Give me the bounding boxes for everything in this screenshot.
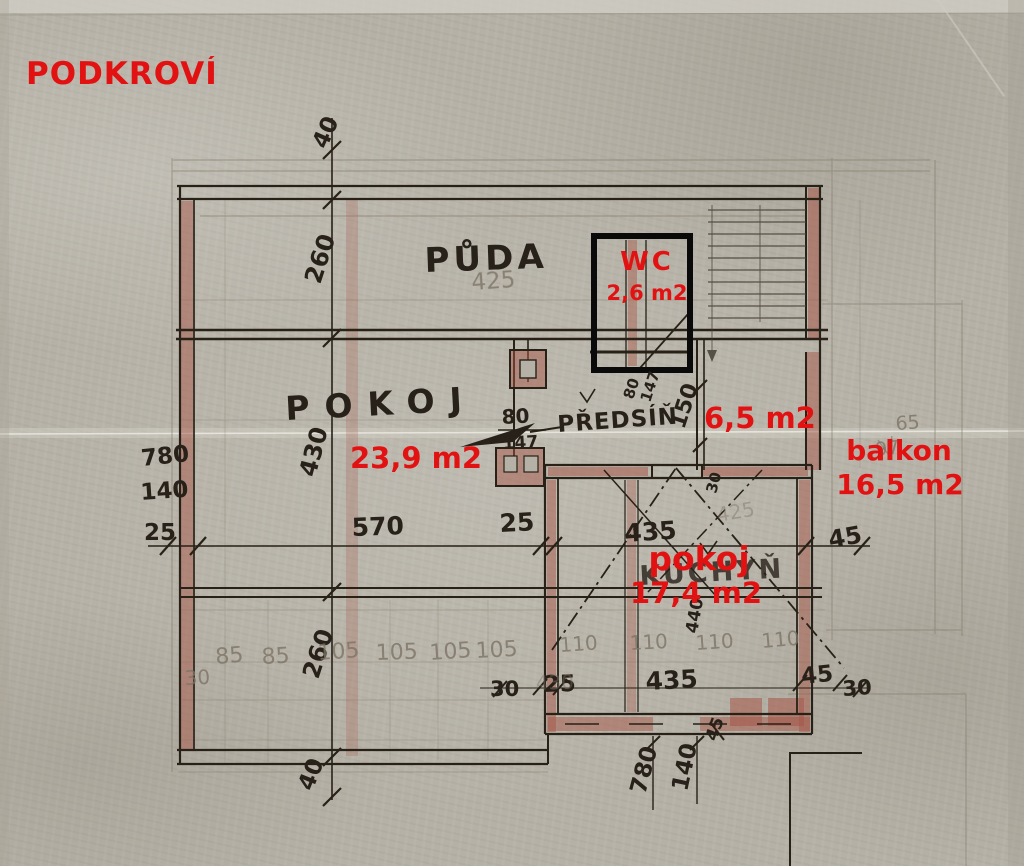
annotation-balkon-label: balkon <box>846 434 952 467</box>
dim-30-bottom-a: 30 <box>490 677 519 701</box>
dim-pencil-110d: 110 <box>760 626 800 653</box>
dim-140-left: 140 <box>140 477 190 506</box>
dim-door-147: 147 <box>502 432 538 454</box>
dim-45-bottom: 45 <box>800 661 835 690</box>
dim-pencil-faint-425: 425 <box>715 497 757 527</box>
dim-left-40-top: 40 <box>308 113 345 153</box>
dim-pencil-105d: 105 <box>475 637 518 664</box>
dim-pencil-85b: 85 <box>261 644 290 670</box>
dim-pencil-85a: 85 <box>214 643 244 670</box>
dim-435-bottom: 435 <box>645 664 699 696</box>
annotation-pokoj2-label: pokoj <box>648 539 749 578</box>
dim-45-mid: 45 <box>826 521 864 554</box>
annotation-pokoj2-area: 17,4 m2 <box>630 576 762 610</box>
annotation-wc-label: WC <box>620 247 674 277</box>
dim-30-bottom-b: 30 <box>842 675 873 701</box>
annotation-pokoj-area: 23,9 m2 <box>350 441 482 475</box>
scanned-floor-plan: PŮDA POKOJ PŘEDSÍŇ KUCHYŇ 40 260 430 260… <box>0 0 1024 866</box>
pencil-construction-lines <box>172 158 966 866</box>
dim-door-80: 80 <box>501 404 530 429</box>
page-title: PODKROVÍ <box>26 56 218 92</box>
dim-pencil-110a: 110 <box>559 630 599 657</box>
dim-pencil-105b: 105 <box>375 640 418 666</box>
room-label-pokoj: POKOJ <box>284 379 477 428</box>
dim-door-vert-147: 147 <box>637 369 664 404</box>
dim-pencil-110c: 110 <box>695 628 735 655</box>
dim-pencil-faint-430: 430 <box>535 670 574 695</box>
dim-150: 150 <box>666 380 704 431</box>
dim-pencil-65: 65 <box>895 411 921 435</box>
dim-pencil-105c: 105 <box>429 638 473 666</box>
dim-780-bottom: 780 <box>626 743 664 796</box>
annotation-wc-area: 2,6 m2 <box>606 281 687 305</box>
floor-plan-drawing: PŮDA POKOJ PŘEDSÍŇ KUCHYŇ 40 260 430 260… <box>0 0 1024 866</box>
dim-25-left: 25 <box>144 520 176 546</box>
dim-pencil-105a: 105 <box>317 638 361 666</box>
dim-570: 570 <box>351 511 404 542</box>
dim-pencil-425: 425 <box>471 267 517 296</box>
dim-pencil-110b: 110 <box>629 629 668 655</box>
annotation-balkon-area: 16,5 m2 <box>836 468 964 501</box>
dim-780-left: 780 <box>140 441 190 472</box>
dim-pencil-30: 30 <box>184 665 211 690</box>
dim-25-mid: 25 <box>499 507 535 538</box>
annotation-predsin-area: 6,5 m2 <box>704 401 816 435</box>
dim-left-260-top: 260 <box>299 231 341 287</box>
dim-left-40-bottom: 40 <box>293 755 329 794</box>
